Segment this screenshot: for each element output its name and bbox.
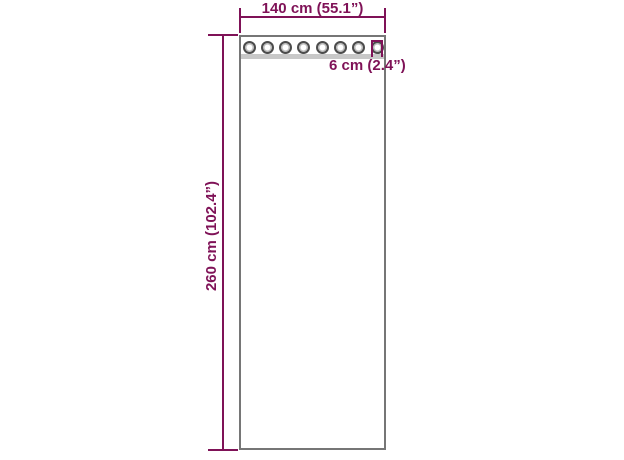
height-dimension-line <box>222 35 224 450</box>
height-dimension-label: 260 cm (102.4”) <box>204 181 220 291</box>
height-dimension-cap-top <box>208 34 238 36</box>
curtain-panel <box>239 35 386 450</box>
width-dimension-label: 140 cm (55.1”) <box>240 1 385 17</box>
width-dimension-line <box>240 16 385 18</box>
grommet-icon <box>279 41 292 54</box>
grommet-icon <box>352 41 365 54</box>
height-dimension-cap-bottom <box>208 449 238 451</box>
grommet-icon <box>334 41 347 54</box>
width-dimension-tick-right <box>384 8 386 33</box>
grommet-row <box>241 37 384 54</box>
grommet-dimension-label: 6 cm (2.4”) <box>329 58 406 74</box>
dimension-diagram: 140 cm (55.1”) 260 cm (102.4”) 6 cm (2.4… <box>0 0 624 460</box>
grommet-icon <box>316 41 329 54</box>
grommet-icon <box>297 41 310 54</box>
grommet-icon <box>261 41 274 54</box>
width-dimension-tick-left <box>239 8 241 33</box>
grommet-icon <box>243 41 256 54</box>
grommet-dimension-bracket <box>371 40 383 57</box>
